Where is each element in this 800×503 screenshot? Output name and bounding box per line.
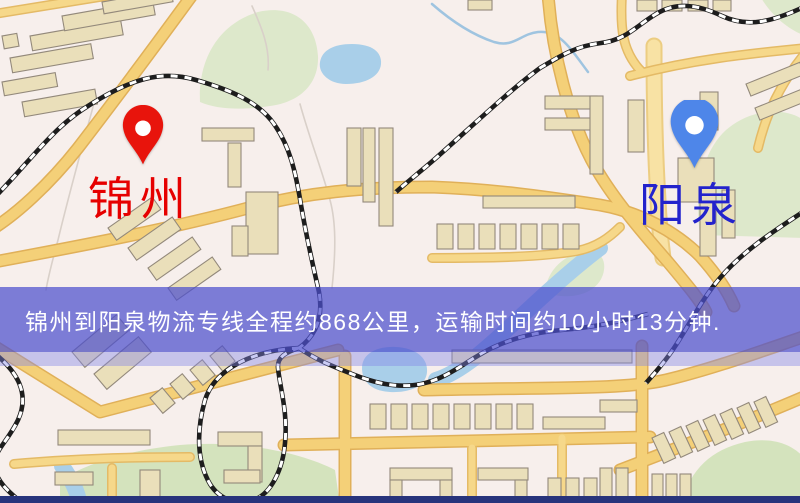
blue-pin-hole: [685, 116, 703, 134]
red-pin-icon[interactable]: [120, 105, 166, 168]
route-info-banner: 锦州到阳泉物流专线全程约868公里，运输时间约10小时13分钟.: [0, 287, 800, 352]
destination-city-label: 阳泉: [639, 182, 743, 228]
logistics-route-map: 锦州 阳泉 锦州到阳泉物流专线全程约868公里，运输时间约10小时13分钟.: [0, 0, 800, 503]
bottom-strip: [0, 496, 800, 503]
origin-city-label: 锦州: [88, 176, 192, 222]
map-canvas: [0, 0, 800, 503]
red-pin-hole: [135, 120, 151, 136]
route-info-text: 锦州到阳泉物流专线全程约868公里，运输时间约10小时13分钟.: [25, 303, 721, 337]
blue-pin-icon[interactable]: [666, 100, 723, 170]
route-info-banner-fade: [0, 352, 800, 366]
